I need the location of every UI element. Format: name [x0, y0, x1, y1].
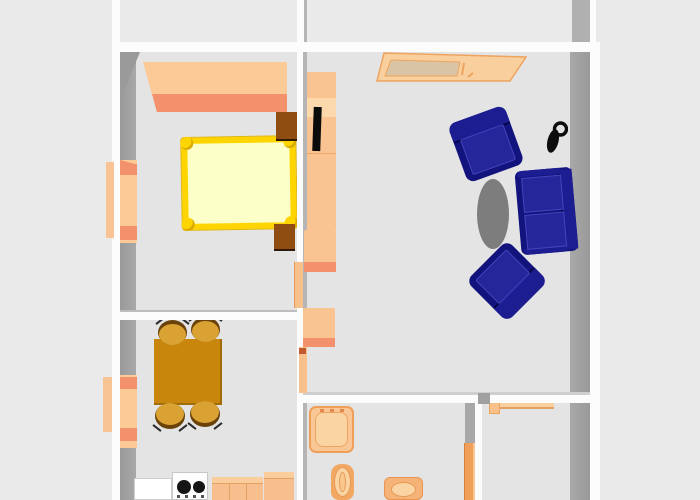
wall-right — [590, 42, 600, 500]
toilet[interactable] — [331, 464, 354, 500]
dining-chair-2[interactable] — [191, 317, 220, 342]
counter-1-seam — [229, 484, 230, 500]
bed-post-top-left — [180, 137, 193, 150]
dining-window[interactable] — [120, 375, 137, 448]
bed-post-bottom-left — [182, 218, 195, 231]
sofa-cushion-2 — [524, 211, 567, 249]
floorplan-canvas — [0, 0, 700, 500]
top-stub-mid-face — [304, 0, 307, 44]
wall-top — [112, 42, 598, 52]
double-bed[interactable] — [181, 136, 297, 230]
bedroom-window-sill — [106, 162, 114, 238]
wall-junction-block — [478, 393, 490, 404]
dining-chair-1[interactable] — [158, 320, 187, 345]
nightstand-top[interactable] — [276, 112, 297, 141]
shower-tray[interactable] — [309, 406, 354, 453]
wall-stub-top-mid — [297, 0, 304, 44]
wall-left — [112, 42, 120, 500]
toilet-bowl-ring — [339, 472, 346, 492]
stove-knob — [177, 495, 180, 498]
stove-knob — [193, 495, 196, 498]
tv-screen[interactable] — [312, 107, 322, 151]
dining-window-sill — [103, 377, 112, 432]
wall-unit-seam — [307, 153, 336, 154]
washbasin-bowl — [391, 482, 416, 497]
stove-knob — [185, 495, 188, 498]
wardrobe-top[interactable] — [143, 62, 287, 96]
wall-bathroom-top — [297, 395, 590, 403]
bedroom-window[interactable] — [120, 160, 137, 243]
dining-chair-4[interactable] — [190, 401, 220, 427]
kitchen-counter-1[interactable] — [212, 477, 263, 500]
dining-window-frame-top — [120, 377, 137, 389]
nightstand-bottom[interactable] — [274, 224, 295, 251]
oval-rug[interactable] — [477, 179, 509, 249]
wall-stub-top-left — [112, 0, 120, 44]
wall-stub-top-right — [590, 0, 596, 42]
wardrobe-front — [150, 94, 287, 112]
kitchen-counter-2[interactable] — [264, 472, 294, 500]
bedroom-window-frame-top — [120, 160, 137, 175]
dining-door-handle — [299, 348, 306, 354]
chair-4-seat — [191, 401, 219, 423]
wall-bedroom-dining — [112, 312, 303, 320]
shower-faucet — [330, 409, 334, 412]
counter-2-top-strip — [264, 472, 294, 479]
bedroom-door[interactable] — [294, 262, 303, 308]
low-cabinet-1-front — [304, 262, 336, 272]
washbasin[interactable] — [384, 477, 423, 500]
kitchen-white-cabinet[interactable] — [134, 478, 172, 500]
wall-unit[interactable] — [307, 72, 336, 230]
chair-3-seat — [156, 403, 184, 425]
sofa-cushion-1 — [521, 175, 564, 213]
counter-1-seam — [246, 484, 247, 500]
stove-knob — [201, 495, 204, 498]
right-wall-face — [570, 52, 590, 500]
shower-basin — [315, 412, 348, 447]
bathroom-door[interactable] — [464, 443, 475, 500]
top-stub-right-face — [572, 0, 590, 42]
burner-small — [193, 481, 205, 493]
bedroom-window-frame-bottom — [120, 226, 137, 240]
wall-bathroom-right — [475, 402, 482, 500]
counter-1-top-strip — [212, 477, 263, 484]
shower-faucet — [320, 409, 324, 412]
floor-lamp[interactable] — [546, 120, 568, 154]
burner-large — [177, 480, 191, 494]
sideboard-table[interactable] — [376, 51, 527, 83]
dining-door[interactable] — [299, 347, 307, 393]
dining-window-frame-bottom — [120, 428, 137, 441]
shower-faucet — [340, 409, 344, 412]
low-cabinet-1[interactable] — [304, 230, 336, 272]
stove[interactable] — [172, 472, 208, 500]
dining-table[interactable] — [154, 339, 222, 405]
sofa[interactable] — [514, 167, 578, 256]
low-cabinet-2-front — [303, 338, 335, 347]
low-cabinet-2[interactable] — [303, 308, 335, 347]
chair-2-seat — [192, 321, 219, 342]
dining-chair-3[interactable] — [155, 403, 185, 429]
chair-1-seat — [159, 324, 186, 345]
